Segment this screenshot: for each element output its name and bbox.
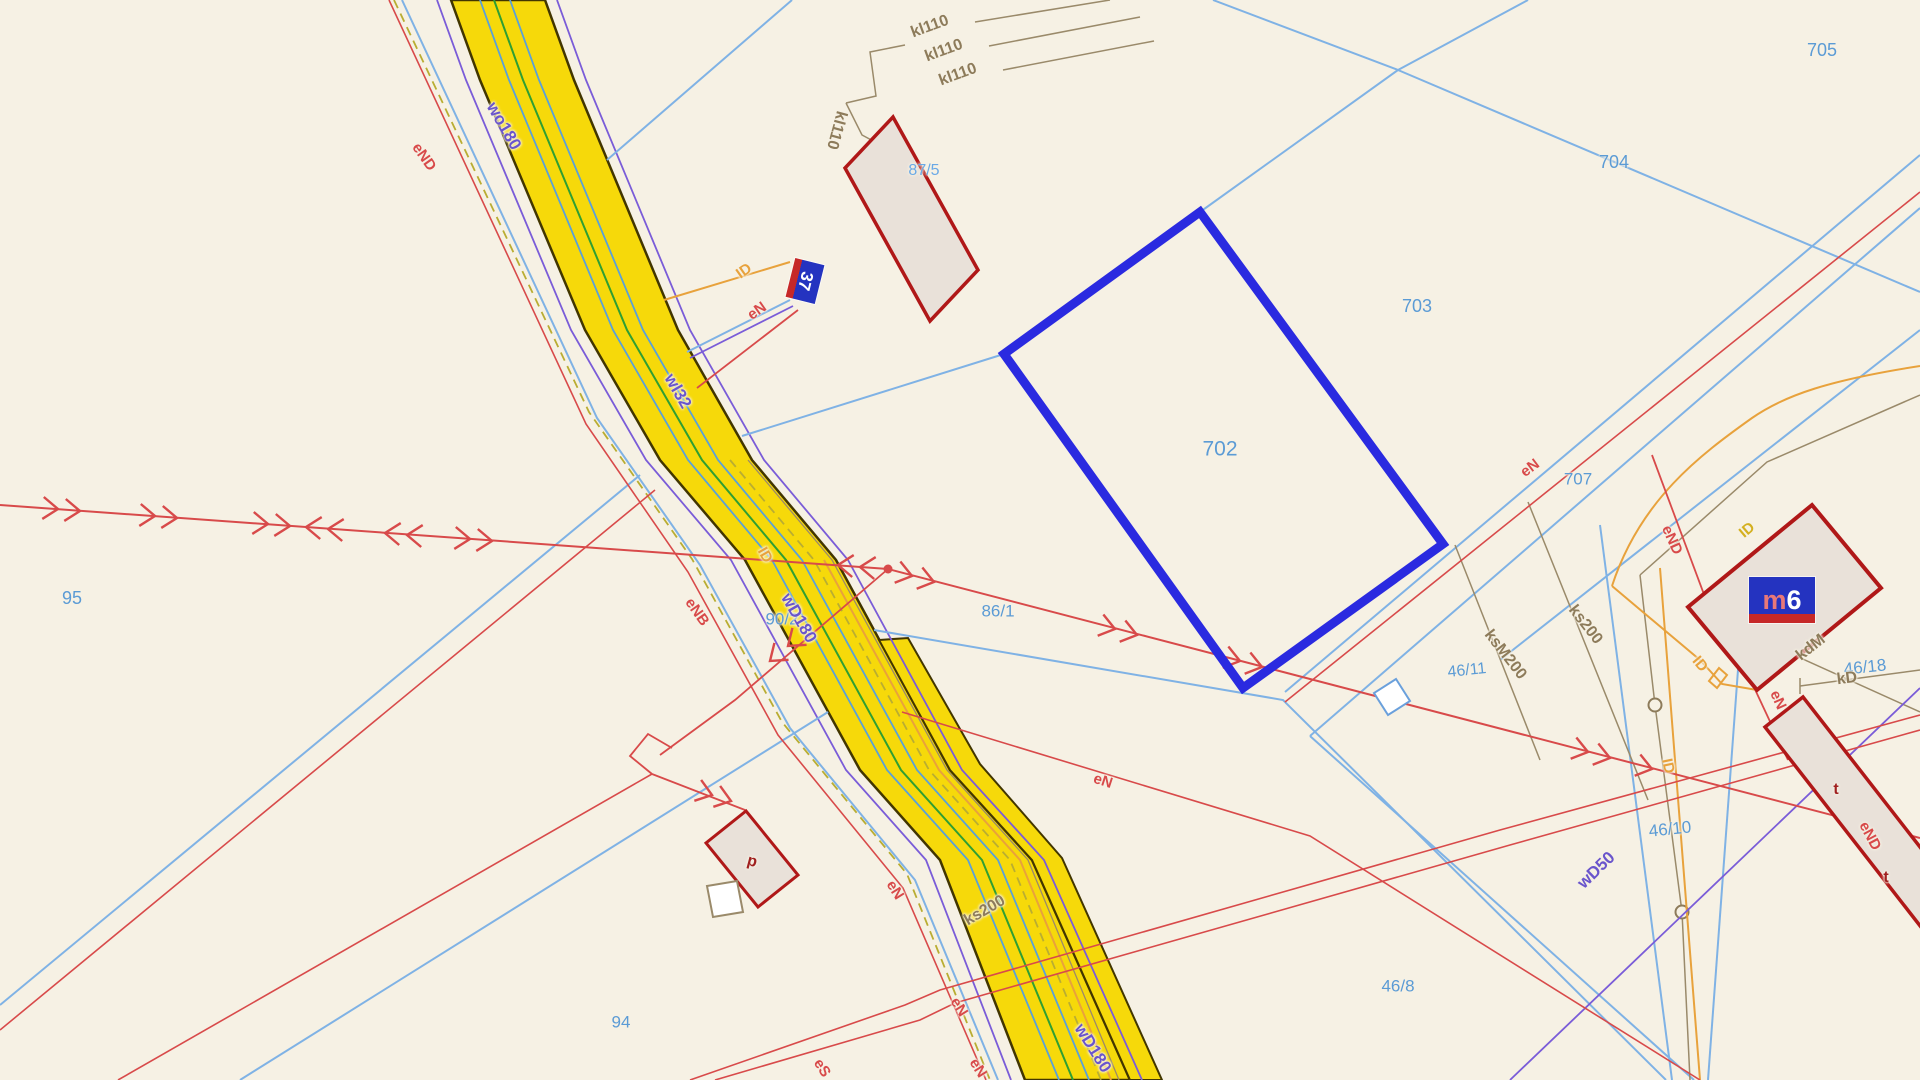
address-plate-m6: m6 xyxy=(1749,577,1815,623)
power-node xyxy=(884,565,893,574)
outbuilding-square xyxy=(707,881,743,917)
parcel-label-95[interactable]: 95 xyxy=(62,589,82,607)
utility-label-ID-south: ID xyxy=(1659,757,1677,775)
building-label-t2: t xyxy=(1883,870,1888,886)
address-plate-37-number: 37 xyxy=(793,269,817,292)
parcel-label-86-1[interactable]: 86/1 xyxy=(981,603,1014,620)
utility-square-46-11 xyxy=(1374,679,1410,715)
building-label-t1: t xyxy=(1833,782,1838,798)
parcel-label-705[interactable]: 705 xyxy=(1807,41,1837,59)
parcel-label-94[interactable]: 94 xyxy=(612,1014,631,1031)
parcel-label-702[interactable]: 702 xyxy=(1202,439,1237,460)
map-graphics xyxy=(0,0,1920,1080)
building-function-letter-m: m xyxy=(1762,585,1786,616)
parcel-label-707[interactable]: 707 xyxy=(1564,471,1592,488)
parcel-label-703[interactable]: 703 xyxy=(1402,297,1432,315)
address-plate-m6-number: 6 xyxy=(1786,585,1801,616)
map-canvas[interactable]: 37 m6 702 703 704 705 707 95 94 90/2 86/… xyxy=(0,0,1920,1080)
building-87-5 xyxy=(845,117,978,321)
parcel-label-704[interactable]: 704 xyxy=(1599,153,1629,171)
parcel-label-87-5[interactable]: 87/5 xyxy=(908,163,939,179)
building-t xyxy=(1765,697,1920,936)
utility-label-kD: kD xyxy=(1836,670,1858,688)
parcel-label-46-8[interactable]: 46/8 xyxy=(1381,978,1414,995)
manhole-icon xyxy=(1649,699,1662,712)
parcel-label-46-10[interactable]: 46/10 xyxy=(1648,818,1692,839)
parcel-label-87-7-cut[interactable]: 87/7 xyxy=(1388,0,1419,1)
parcel-label-87-4-cut[interactable]: 87/4 xyxy=(630,0,661,1)
